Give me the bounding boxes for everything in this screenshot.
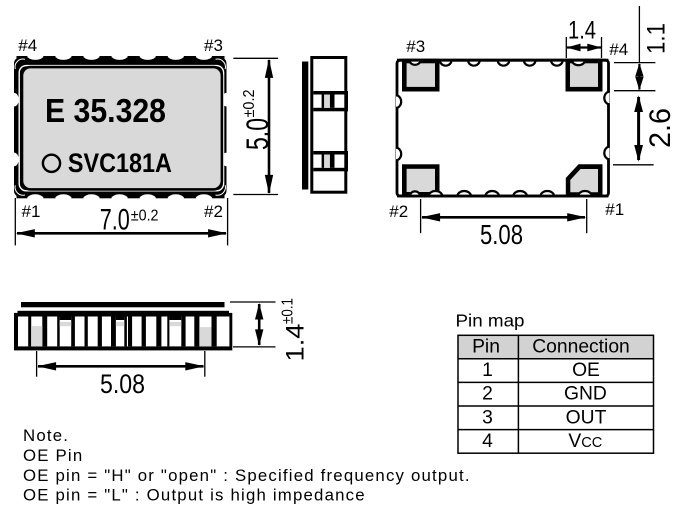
svg-text:3: 3 <box>482 407 493 428</box>
svg-text:OE pin = "L" : Output is high: OE pin = "L" : Output is high impedance <box>23 486 366 505</box>
svg-text:#2: #2 <box>204 202 223 221</box>
svg-text:±0.2: ±0.2 <box>241 90 258 118</box>
svg-text:#4: #4 <box>18 36 37 55</box>
svg-text:OUT: OUT <box>566 407 607 428</box>
svg-text:2.6: 2.6 <box>644 108 677 148</box>
svg-text:5.0: 5.0 <box>239 118 275 150</box>
svg-text:E 35.328: E 35.328 <box>45 92 166 129</box>
svg-text:OE Pin: OE Pin <box>23 446 83 465</box>
svg-text:#3: #3 <box>406 37 425 56</box>
svg-text:±0.1: ±0.1 <box>280 298 297 324</box>
svg-text:Note.: Note. <box>23 426 69 445</box>
svg-text:OE pin = "H" or "open" : Speci: OE pin = "H" or "open" : Specified frequ… <box>23 466 471 485</box>
svg-text:1.4: 1.4 <box>282 323 310 361</box>
svg-text:#1: #1 <box>605 200 624 219</box>
svg-text:1.1: 1.1 <box>643 23 671 54</box>
svg-text:VCC: VCC <box>568 431 602 452</box>
svg-text:#2: #2 <box>389 202 408 221</box>
svg-text:±0.2: ±0.2 <box>131 208 159 225</box>
svg-text:Pin: Pin <box>472 337 500 358</box>
svg-text:SVC181A: SVC181A <box>68 148 172 178</box>
svg-text:5.08: 5.08 <box>100 369 145 399</box>
svg-text:7.0: 7.0 <box>100 204 130 237</box>
svg-text:OE: OE <box>572 360 600 381</box>
svg-text:#4: #4 <box>609 40 628 59</box>
svg-text:#3: #3 <box>204 36 223 55</box>
svg-text:5.08: 5.08 <box>480 219 523 250</box>
svg-text:Pin map: Pin map <box>456 311 525 331</box>
svg-text:Connection: Connection <box>532 337 630 358</box>
svg-text:2: 2 <box>482 384 493 405</box>
svg-text:4: 4 <box>482 431 493 452</box>
svg-text:GND: GND <box>564 384 607 405</box>
svg-text:1: 1 <box>482 360 493 381</box>
svg-text:1.4: 1.4 <box>568 17 596 45</box>
svg-text:#1: #1 <box>22 202 41 221</box>
